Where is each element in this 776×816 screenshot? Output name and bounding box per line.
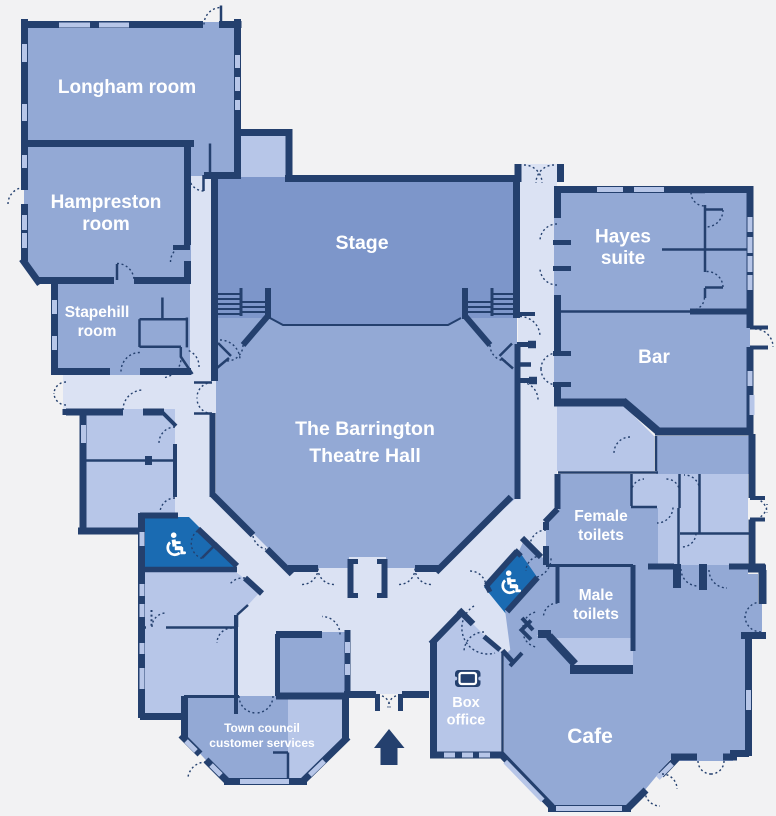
svg-text:customer services: customer services xyxy=(209,736,315,750)
svg-text:Longham room: Longham room xyxy=(58,77,196,98)
svg-text:Stage: Stage xyxy=(335,232,388,254)
svg-text:Town council: Town council xyxy=(224,721,300,735)
svg-text:The Barrington: The Barrington xyxy=(295,418,435,440)
svg-text:toilets: toilets xyxy=(578,527,624,544)
svg-text:Male: Male xyxy=(579,587,614,604)
svg-text:Theatre Hall: Theatre Hall xyxy=(309,445,421,467)
svg-text:room: room xyxy=(78,323,117,340)
svg-text:suite: suite xyxy=(601,248,645,269)
svg-text:Stapehill: Stapehill xyxy=(65,304,130,321)
svg-text:Cafe: Cafe xyxy=(567,725,613,748)
svg-text:toilets: toilets xyxy=(573,606,619,623)
svg-text:Hampreston: Hampreston xyxy=(51,192,162,213)
svg-text:office: office xyxy=(447,713,486,729)
svg-text:Hayes: Hayes xyxy=(595,227,651,248)
svg-text:Female: Female xyxy=(574,508,628,525)
svg-text:Bar: Bar xyxy=(638,347,670,368)
svg-text:Box: Box xyxy=(452,695,479,711)
svg-text:room: room xyxy=(82,214,130,235)
